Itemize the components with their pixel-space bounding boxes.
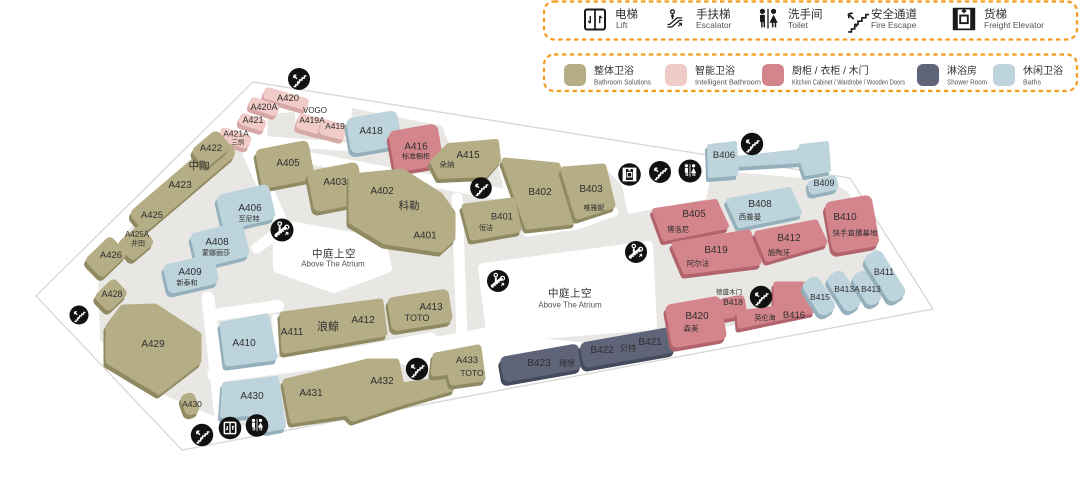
svg-text:A433: A433 xyxy=(456,355,478,366)
svg-text:A413: A413 xyxy=(419,302,443,313)
svg-text:英伦海: 英伦海 xyxy=(755,313,776,322)
svg-text:蒙娜丽莎: 蒙娜丽莎 xyxy=(202,248,230,257)
svg-text:B418: B418 xyxy=(723,297,743,307)
svg-text:浪鲸: 浪鲸 xyxy=(317,319,339,333)
svg-text:A431: A431 xyxy=(299,388,323,399)
svg-text:B419: B419 xyxy=(704,245,728,256)
svg-text:Fire Escape: Fire Escape xyxy=(871,20,917,30)
svg-text:A415: A415 xyxy=(456,150,480,161)
svg-text:新泰和: 新泰和 xyxy=(177,278,198,287)
svg-text:A416: A416 xyxy=(404,142,428,153)
svg-text:A420: A420 xyxy=(277,93,299,104)
svg-text:施陶牙: 施陶牙 xyxy=(768,247,791,257)
svg-text:休闲卫浴: 休闲卫浴 xyxy=(1023,64,1063,77)
svg-text:A419: A419 xyxy=(325,121,345,131)
svg-text:德盛木门: 德盛木门 xyxy=(716,287,742,296)
svg-text:科勒: 科勒 xyxy=(399,199,420,212)
svg-text:B415: B415 xyxy=(810,292,830,302)
svg-text:B402: B402 xyxy=(528,187,552,198)
svg-text:井田: 井田 xyxy=(131,239,145,248)
svg-text:Lift: Lift xyxy=(616,20,628,30)
svg-text:A402: A402 xyxy=(370,186,394,197)
svg-text:A429: A429 xyxy=(141,339,165,350)
svg-text:TOTO: TOTO xyxy=(460,368,484,378)
svg-text:B420: B420 xyxy=(685,311,709,322)
svg-text:中庭上空: 中庭上空 xyxy=(312,247,356,260)
svg-text:朵纳: 朵纳 xyxy=(440,159,455,169)
svg-text:博洛尼: 博洛尼 xyxy=(667,224,690,234)
svg-text:B421: B421 xyxy=(638,337,662,348)
svg-text:货梯: 货梯 xyxy=(984,7,1007,21)
svg-text:A403: A403 xyxy=(323,177,347,188)
svg-text:洗手间: 洗手间 xyxy=(788,7,823,21)
svg-text:手扶梯: 手扶梯 xyxy=(696,7,731,21)
svg-text:B410: B410 xyxy=(833,212,857,223)
svg-text:A430: A430 xyxy=(182,399,202,409)
svg-text:中陶: 中陶 xyxy=(189,159,210,172)
svg-text:B422: B422 xyxy=(590,345,614,356)
svg-text:VOGO: VOGO xyxy=(303,106,327,115)
svg-text:B411: B411 xyxy=(874,267,894,277)
svg-text:A409: A409 xyxy=(178,267,202,278)
svg-text:A421: A421 xyxy=(242,115,263,125)
svg-text:理想: 理想 xyxy=(559,358,575,368)
svg-text:A408: A408 xyxy=(205,237,229,248)
svg-text:A419A: A419A xyxy=(299,115,325,125)
svg-text:森美: 森美 xyxy=(684,323,699,333)
svg-text:B408: B408 xyxy=(748,199,772,210)
svg-text:A406: A406 xyxy=(238,203,262,214)
svg-text:三鹄: 三鹄 xyxy=(232,138,246,147)
svg-text:快手直播基地: 快手直播基地 xyxy=(833,228,878,238)
svg-text:A425A: A425A xyxy=(125,230,150,239)
svg-text:安全通道: 安全通道 xyxy=(871,7,917,21)
svg-text:贝特: 贝特 xyxy=(620,343,636,353)
svg-text:B409: B409 xyxy=(813,178,834,188)
svg-text:Intelligent Bathroom: Intelligent Bathroom xyxy=(695,78,761,87)
svg-text:Bathroom Solutions: Bathroom Solutions xyxy=(594,78,651,87)
svg-text:Toilet: Toilet xyxy=(788,20,808,30)
svg-text:Escalator: Escalator xyxy=(696,20,732,30)
svg-text:至尼特: 至尼特 xyxy=(239,214,260,223)
svg-text:A410: A410 xyxy=(232,338,256,349)
svg-text:TOTO: TOTO xyxy=(405,313,430,323)
svg-text:B413: B413 xyxy=(861,284,881,294)
svg-text:A411: A411 xyxy=(281,327,304,338)
svg-text:淋浴房: 淋浴房 xyxy=(947,64,977,77)
svg-text:A426: A426 xyxy=(100,250,122,261)
svg-text:Shower Room: Shower Room xyxy=(947,78,987,87)
svg-text:B416: B416 xyxy=(783,310,805,321)
svg-text:A430: A430 xyxy=(240,391,264,402)
svg-text:B406: B406 xyxy=(713,150,735,161)
svg-text:B423: B423 xyxy=(527,358,551,369)
svg-text:阿尔法: 阿尔法 xyxy=(687,258,710,268)
svg-text:A401: A401 xyxy=(413,231,437,242)
svg-text:Baths: Baths xyxy=(1023,78,1041,87)
svg-text:A422: A422 xyxy=(200,143,222,154)
svg-text:A420A: A420A xyxy=(250,102,277,112)
svg-text:A405: A405 xyxy=(276,158,300,169)
svg-text:A418: A418 xyxy=(359,126,383,137)
svg-text:整体卫浴: 整体卫浴 xyxy=(594,64,634,77)
svg-text:厨柜 / 衣柜 / 木门: 厨柜 / 衣柜 / 木门 xyxy=(792,64,869,77)
svg-text:标准橱柜: 标准橱柜 xyxy=(402,152,430,161)
svg-text:B413A: B413A xyxy=(834,284,860,294)
svg-text:A423: A423 xyxy=(168,180,192,191)
svg-text:A412: A412 xyxy=(351,315,375,326)
svg-text:智能卫浴: 智能卫浴 xyxy=(695,64,735,77)
svg-text:恒洁: 恒洁 xyxy=(479,223,493,232)
svg-text:Kitchen Cabinet / Wardrobe / W: Kitchen Cabinet / Wardrobe / Wooden Door… xyxy=(792,78,905,87)
svg-text:B412: B412 xyxy=(777,233,801,244)
svg-text:西普曼: 西普曼 xyxy=(739,212,762,222)
svg-text:Above The Atrium: Above The Atrium xyxy=(301,260,365,269)
svg-text:B401: B401 xyxy=(491,212,513,223)
svg-text:Freight Elevator: Freight Elevator xyxy=(984,20,1044,30)
svg-text:B405: B405 xyxy=(682,209,706,220)
svg-text:A432: A432 xyxy=(370,376,394,387)
svg-text:中庭上空: 中庭上空 xyxy=(548,287,592,300)
svg-text:唯雅妮: 唯雅妮 xyxy=(584,203,605,212)
svg-text:B403: B403 xyxy=(579,184,603,195)
svg-text:A428: A428 xyxy=(101,289,122,299)
svg-text:A425: A425 xyxy=(141,210,163,221)
svg-text:A421A: A421A xyxy=(223,129,249,139)
svg-text:Above The Atrium: Above The Atrium xyxy=(538,301,602,310)
